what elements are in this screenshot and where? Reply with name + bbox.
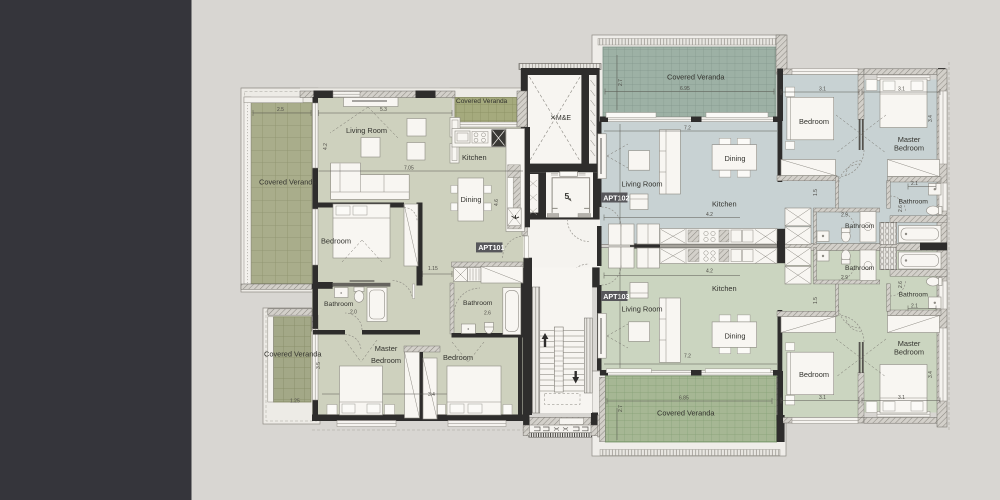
- svg-text:APT103: APT103: [603, 292, 629, 301]
- svg-text:2.1: 2.1: [911, 304, 918, 310]
- svg-text:5.3: 5.3: [380, 107, 387, 113]
- svg-text:Bathroom: Bathroom: [324, 301, 354, 308]
- svg-text:Covered Veranda: Covered Veranda: [667, 73, 725, 82]
- svg-text:6.85: 6.85: [679, 396, 689, 402]
- svg-text:2.7: 2.7: [618, 79, 624, 86]
- svg-text:4.6: 4.6: [494, 199, 500, 206]
- svg-text:3.4: 3.4: [928, 371, 934, 378]
- svg-text:1.5: 1.5: [813, 297, 819, 304]
- svg-text:7.05: 7.05: [404, 166, 414, 172]
- svg-text:Dining: Dining: [725, 154, 746, 163]
- svg-text:Covered Veranda: Covered Veranda: [259, 178, 317, 187]
- svg-text:3.5: 3.5: [316, 362, 322, 369]
- svg-text:3.4: 3.4: [428, 392, 435, 398]
- svg-text:Bedroom: Bedroom: [443, 353, 473, 362]
- svg-text:1.5: 1.5: [813, 189, 819, 196]
- svg-text:Bathroom: Bathroom: [845, 265, 875, 272]
- svg-text:Kitchen: Kitchen: [462, 153, 487, 162]
- svg-text:1.15: 1.15: [428, 266, 438, 272]
- svg-text:2.5: 2.5: [277, 107, 284, 113]
- svg-text:3.4: 3.4: [928, 115, 934, 122]
- svg-text:Kitchen: Kitchen: [712, 284, 737, 293]
- svg-text:2.9: 2.9: [841, 275, 848, 281]
- svg-text:Bedroom: Bedroom: [799, 370, 829, 379]
- svg-text:2.1: 2.1: [911, 181, 918, 187]
- svg-text:Bedroom: Bedroom: [799, 117, 829, 126]
- svg-text:Bedroom: Bedroom: [321, 237, 351, 246]
- svg-text:Living Room: Living Room: [346, 126, 387, 135]
- svg-text:4.2: 4.2: [706, 269, 713, 275]
- svg-text:4.2: 4.2: [706, 212, 713, 218]
- svg-text:APT102: APT102: [603, 193, 629, 202]
- svg-text:Covered Veranda: Covered Veranda: [264, 350, 322, 359]
- svg-text:3.1: 3.1: [898, 87, 905, 93]
- svg-text:Living Room: Living Room: [622, 305, 663, 314]
- svg-text:Kitchen: Kitchen: [712, 200, 737, 209]
- svg-text:Bathroom: Bathroom: [463, 300, 493, 307]
- svg-text:7.2: 7.2: [684, 126, 691, 132]
- svg-text:MasterBedroom: MasterBedroom: [894, 135, 924, 153]
- svg-text:Bathroom: Bathroom: [899, 292, 929, 299]
- svg-text:6.95: 6.95: [680, 86, 690, 92]
- svg-text:2.6: 2.6: [898, 281, 904, 288]
- svg-text:2.0: 2.0: [350, 310, 357, 316]
- svg-text:3.1: 3.1: [898, 395, 905, 401]
- svg-text:APT101: APT101: [478, 243, 504, 252]
- svg-text:7.2: 7.2: [684, 354, 691, 360]
- svg-text:4.2: 4.2: [323, 143, 329, 150]
- svg-text:Covered Veranda: Covered Veranda: [456, 98, 508, 105]
- svg-text:3.1: 3.1: [819, 395, 826, 401]
- svg-text:Dining: Dining: [725, 332, 746, 341]
- svg-text:1.25: 1.25: [290, 399, 300, 405]
- svg-text:Dining: Dining: [461, 195, 482, 204]
- svg-text:Bathroom: Bathroom: [845, 223, 875, 230]
- svg-text:3.1: 3.1: [819, 87, 826, 93]
- svg-text:2.6: 2.6: [898, 205, 904, 212]
- svg-text:Living Room: Living Room: [622, 180, 663, 189]
- svg-text:Bathroom: Bathroom: [899, 199, 929, 206]
- svg-text:2.9: 2.9: [841, 213, 848, 219]
- svg-text:Covered Veranda: Covered Veranda: [657, 409, 715, 418]
- svg-text:MasterBedroom: MasterBedroom: [894, 339, 924, 357]
- svg-text:✕M&E: ✕M&E: [550, 115, 571, 122]
- svg-text:2.7: 2.7: [618, 405, 624, 412]
- svg-text:2.6: 2.6: [484, 311, 491, 317]
